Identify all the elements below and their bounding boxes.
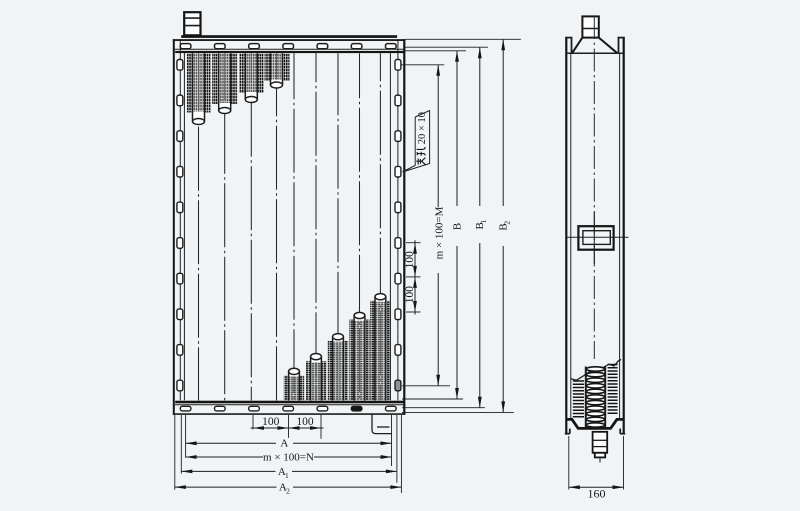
svg-text:B: B <box>451 223 463 230</box>
svg-text:2: 2 <box>502 221 511 225</box>
svg-text:m × 100=N: m × 100=N <box>263 451 314 463</box>
svg-text:A: A <box>280 438 288 450</box>
svg-text:2: 2 <box>286 487 290 496</box>
svg-text:100: 100 <box>404 251 416 269</box>
svg-text:100: 100 <box>404 286 416 304</box>
svg-text:160: 160 <box>588 486 606 500</box>
svg-text:1: 1 <box>479 219 488 223</box>
svg-text:m × 100=M: m × 100=M <box>433 206 445 259</box>
svg-text:1: 1 <box>285 471 289 480</box>
svg-text:20 × 10: 20 × 10 <box>417 112 428 144</box>
svg-text:100: 100 <box>262 416 280 428</box>
svg-text:100: 100 <box>296 416 314 428</box>
